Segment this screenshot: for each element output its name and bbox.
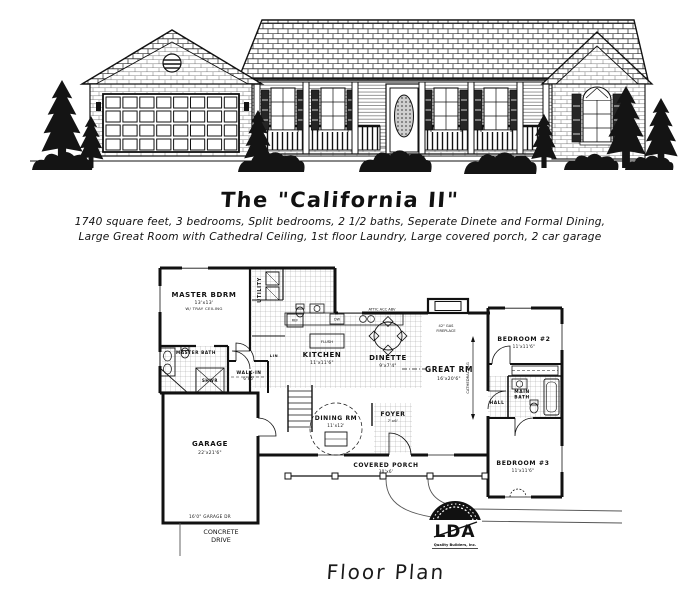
label-garage-door: 16'0" GARAGE DR	[189, 514, 231, 519]
label-covered-porch-dims: 30'x6'	[379, 469, 394, 474]
plan-description-line2: Large Great Room with Cathedral Ceiling,…	[0, 230, 680, 245]
front-door	[386, 84, 422, 154]
label-bedroom2: BEDROOM #2	[497, 336, 550, 343]
label-main-bath-1: MAIN	[514, 389, 529, 395]
floor-plan-drawing: MASTER BDRM 13'x13' W/ TRAY CEILING MAST…	[0, 256, 680, 568]
label-drive-2: DRIVE	[211, 536, 231, 544]
floor-plan-caption: Floor Plan	[91, 560, 680, 584]
builder-logo: LDA Quality Builders, Inc.	[428, 501, 482, 549]
label-kitchen-dims: 11'x11'6"	[310, 360, 334, 366]
label-fireplace-1: 42" GAS	[439, 324, 455, 328]
garage-door	[103, 94, 239, 152]
label-dinette-dims: 9'x7'4"	[379, 363, 397, 369]
label-garage: GARAGE	[192, 440, 228, 448]
label-dinette: DINETTE	[369, 354, 407, 362]
label-master-bdrm-note: W/ TRAY CEILING	[185, 306, 222, 311]
label-bedroom3-dims: 11'x11'6"	[512, 468, 535, 473]
label-great-rm-dims: 16'x20'6"	[437, 376, 461, 382]
label-dining-rm-dims: 11'x12'	[327, 423, 345, 428]
label-drive-1: CONCRETE	[203, 528, 238, 536]
label-cathedral: CATHEDRAL CLG	[465, 362, 470, 394]
front-elevation-drawing	[0, 4, 680, 186]
label-fireplace-2: FIREPLACE	[436, 329, 456, 333]
label-walk-in-dims: 6'x5'	[243, 376, 254, 381]
label-utility: UTILITY	[257, 277, 263, 303]
label-dw: DW	[334, 318, 341, 322]
plan-description-line1: 1740 square feet, 3 bedrooms, Split bedr…	[0, 215, 680, 230]
porch-window-icon	[261, 88, 305, 132]
plan-description: 1740 square feet, 3 bedrooms, Split bedr…	[0, 215, 680, 246]
logo-subtext: Quality Builders, Inc.	[434, 543, 477, 547]
stairs	[288, 391, 312, 427]
porch-light-icon	[244, 102, 249, 111]
label-covered-porch: COVERED PORCH	[353, 462, 418, 469]
label-foyer-dims: 7'x6'	[388, 418, 399, 423]
title-block: The "California II" 1740 square feet, 3 …	[0, 188, 680, 246]
label-garage-dims: 22'x21'6"	[198, 450, 222, 456]
plan-title: The "California II"	[0, 188, 680, 212]
gable-vent-icon	[163, 54, 181, 72]
label-master-bath: MASTER BATH	[176, 350, 216, 355]
label-bedroom2-dims: 11'x11'6"	[513, 344, 536, 349]
label-shwr: SHWR	[202, 378, 218, 383]
label-foyer: FOYER	[380, 411, 405, 418]
label-hall: HALL	[489, 400, 504, 406]
garage-block	[82, 30, 262, 156]
porch-window-icon	[311, 88, 355, 132]
label-island: FLUSH	[321, 339, 333, 344]
label-ref: REF	[292, 319, 298, 323]
porch-window-icon	[474, 88, 518, 132]
label-lin: LIN	[270, 354, 278, 358]
label-master-bdrm: MASTER BDRM	[172, 291, 237, 299]
label-attic-note: ATTIC ACC ABV	[368, 308, 396, 312]
porch-window-icon	[424, 88, 468, 132]
label-main-bath-2: BATH	[514, 395, 529, 401]
label-kitchen: KITCHEN	[303, 351, 342, 359]
label-dining-rm: DINING RM	[315, 415, 358, 422]
porch-wall	[252, 82, 552, 162]
house-plan-sheet: The "California II" 1740 square feet, 3 …	[0, 0, 680, 593]
porch-light-icon	[96, 102, 101, 111]
driveway	[180, 479, 622, 556]
label-bedroom3: BEDROOM #3	[496, 460, 549, 467]
